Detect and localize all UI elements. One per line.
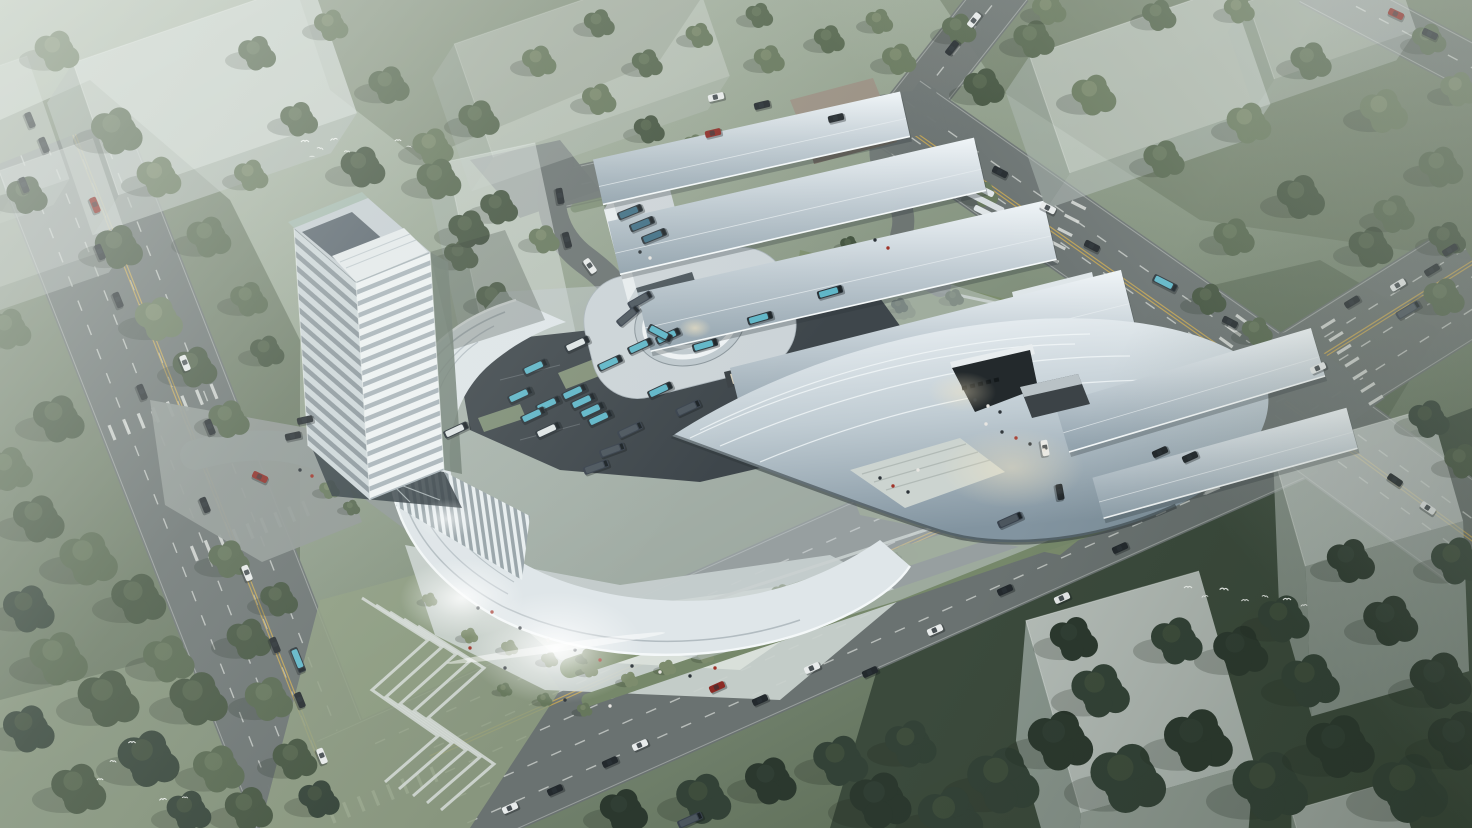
- rendering-stage: Aerial rendering of bus terminal complex: [0, 0, 1472, 828]
- aerial-rendering-canvas: Aerial rendering of bus terminal complex: [0, 0, 1472, 828]
- atmosphere-layer: [0, 0, 1472, 828]
- vignette-southeast: [0, 0, 1472, 828]
